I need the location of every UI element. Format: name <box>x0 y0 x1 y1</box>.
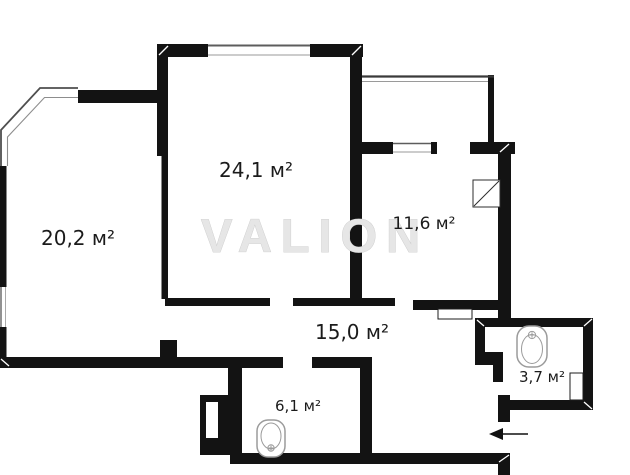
floor-plan-drawing: VALION 24,1 м² 20,2 м² 11,6 м² 15,0 м² 6… <box>0 0 630 475</box>
wall-segment <box>165 298 270 306</box>
wall-segment <box>355 142 393 154</box>
room-label-6-1: 6,1 м² <box>275 397 321 415</box>
wall-segment <box>160 340 177 357</box>
wall-segment <box>0 166 7 287</box>
wall-segment <box>360 362 372 455</box>
door-leaf <box>438 309 472 319</box>
room-label-3-7: 3,7 м² <box>519 368 565 386</box>
balcony-rail <box>488 75 494 143</box>
floor-plan: VALION 24,1 м² 20,2 м² 11,6 м² 15,0 м² 6… <box>0 0 630 475</box>
wall-segment <box>78 90 158 103</box>
bathtub-icon <box>517 326 547 367</box>
room-label-24-1: 24,1 м² <box>219 158 293 182</box>
room-label-11-6: 11,6 м² <box>393 214 456 234</box>
wall-segment <box>312 357 372 368</box>
wall-segment <box>157 44 168 156</box>
room-label-20-2: 20,2 м² <box>41 226 115 250</box>
wall-segment <box>293 298 395 306</box>
wall-segment <box>505 400 593 410</box>
wall-segment <box>498 395 510 422</box>
window-cap <box>431 142 437 154</box>
duct-niche <box>570 373 583 400</box>
room-label-15-0: 15,0 м² <box>315 320 389 344</box>
wall-segment <box>583 318 593 410</box>
wall-segment <box>162 150 169 299</box>
wall-segment <box>493 352 503 382</box>
duct-box-cavity <box>206 402 218 438</box>
toilet-icon <box>257 420 285 457</box>
wall-segment <box>498 142 511 325</box>
